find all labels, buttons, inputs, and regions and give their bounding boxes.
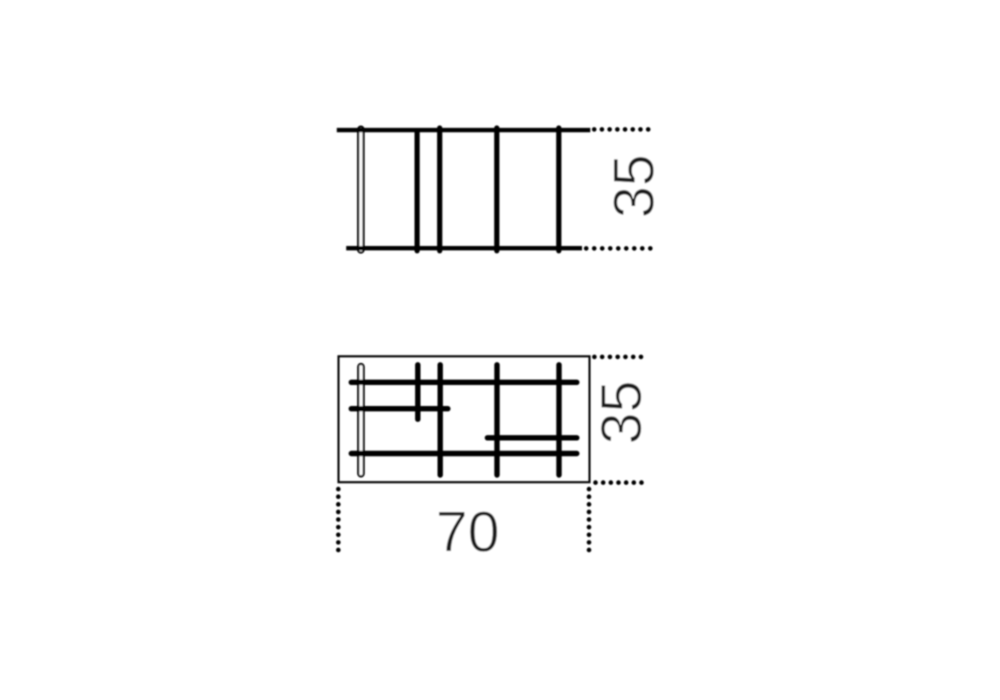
- svg-text:35: 35: [602, 154, 666, 218]
- svg-text:70: 70: [436, 501, 500, 565]
- svg-text:35: 35: [590, 380, 654, 444]
